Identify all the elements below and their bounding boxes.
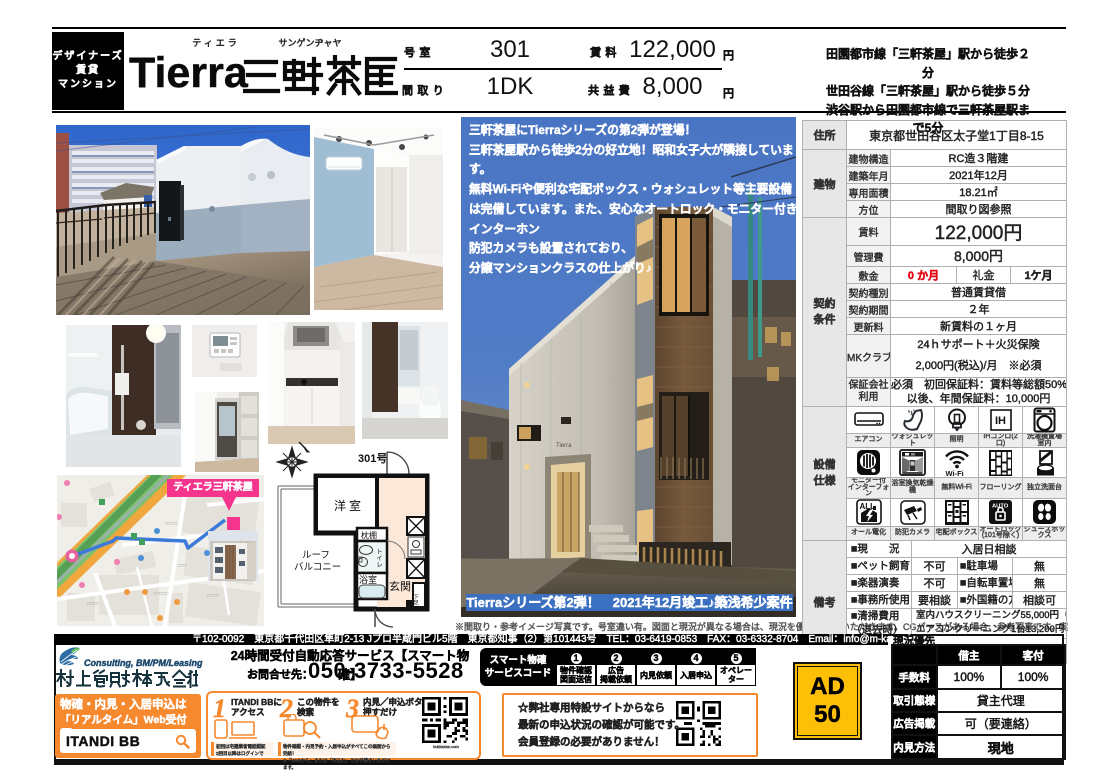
- svg-text:浴室: 浴室: [359, 574, 377, 585]
- svg-text:□□□□: □□□□: [207, 593, 219, 599]
- svg-text:AUTO: AUTO: [992, 504, 1009, 510]
- svg-text:□□□□□: □□□□□: [153, 591, 168, 597]
- svg-text:□□□□: □□□□: [165, 521, 177, 527]
- svg-text:Wi-Fi: Wi-Fi: [945, 469, 963, 477]
- svg-text:Tierra: Tierra: [556, 443, 572, 449]
- svg-text:玄関: 玄関: [389, 579, 411, 593]
- svg-text:下足: 下足: [412, 594, 419, 607]
- svg-text:301号: 301号: [358, 452, 387, 465]
- svg-text:バルコニー: バルコニー: [294, 562, 341, 573]
- svg-text:□□□□: □□□□: [87, 601, 99, 607]
- svg-text:洋室: 洋室: [334, 498, 364, 513]
- svg-text:□□□: □□□: [177, 563, 186, 569]
- svg-text:ルーフ: ルーフ: [302, 550, 330, 561]
- svg-text:枕棚: 枕棚: [361, 530, 377, 540]
- svg-text:IH: IH: [995, 415, 1006, 427]
